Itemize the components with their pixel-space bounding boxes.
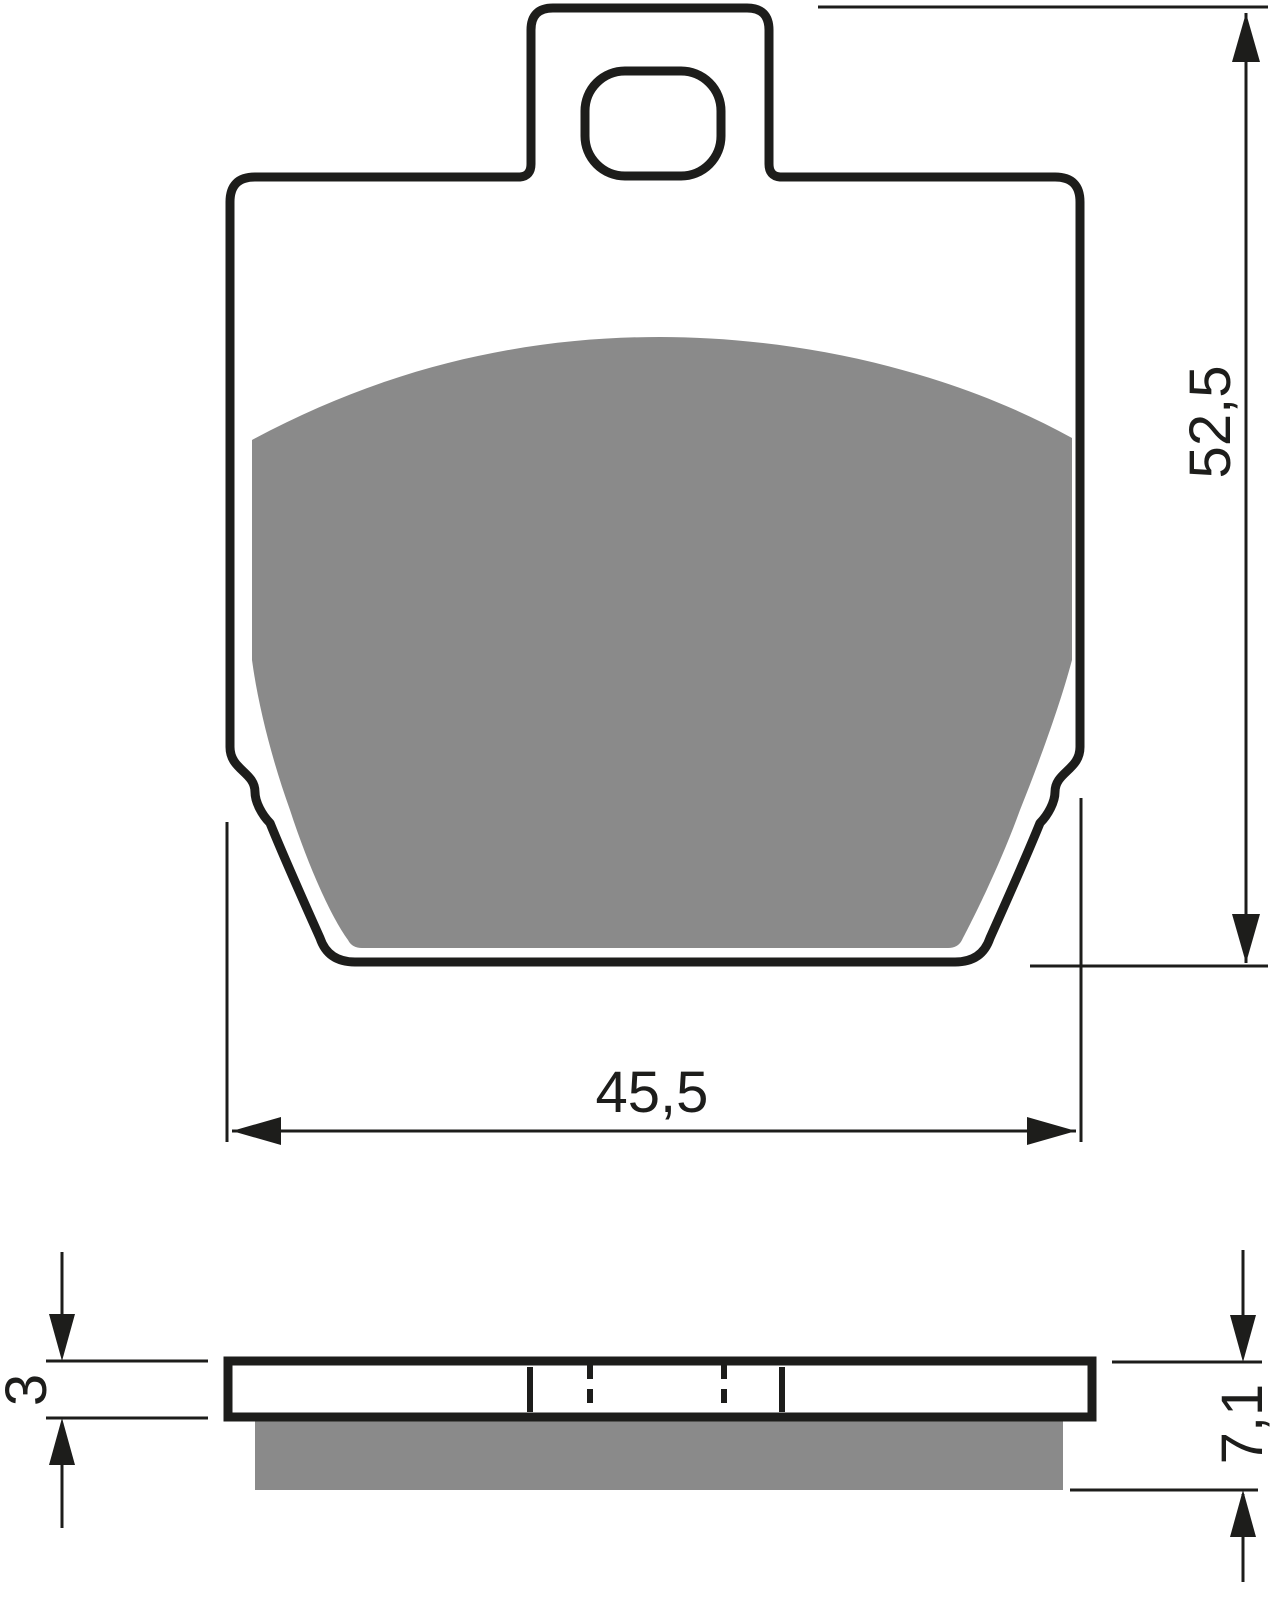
width-dimension-label: 45,5 <box>596 1060 709 1125</box>
friction-material-block <box>255 1420 1063 1490</box>
overall-thickness-dimension: 7,1 <box>1070 1250 1275 1582</box>
backplate-thickness-dimension: 3 <box>0 1252 208 1528</box>
side-view <box>228 1361 1092 1490</box>
backplate-thickness-label: 3 <box>0 1374 59 1406</box>
front-view <box>230 8 1080 962</box>
mounting-tab-hole <box>585 71 721 176</box>
height-dimension-label: 52,5 <box>1178 366 1243 479</box>
arrowhead-left <box>232 1117 281 1145</box>
drawing-canvas: 52,5 45,5 <box>0 0 1275 1600</box>
overall-thickness-label: 7,1 <box>1210 1384 1275 1465</box>
arrowhead-right <box>1027 1117 1076 1145</box>
arrowhead-down <box>1230 1315 1256 1362</box>
brake-pad-technical-drawing: 52,5 45,5 <box>0 0 1275 1600</box>
arrowhead-down <box>1232 914 1260 963</box>
arrowhead-up <box>49 1418 75 1465</box>
arrowhead-up <box>1230 1490 1256 1537</box>
friction-material <box>252 337 1072 948</box>
arrowhead-down <box>49 1314 75 1361</box>
arrowhead-up <box>1232 13 1260 62</box>
backplate <box>228 1361 1092 1417</box>
